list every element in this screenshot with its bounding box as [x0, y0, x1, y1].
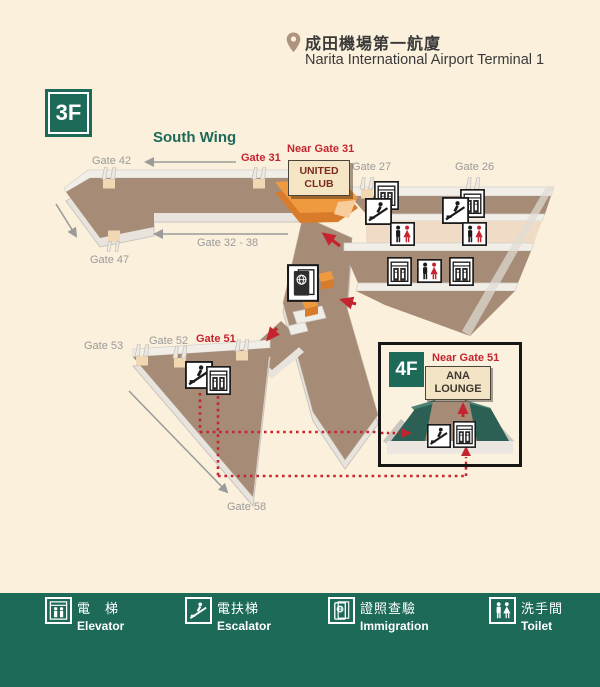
- terminal-map-graphic: [0, 0, 600, 600]
- elevator-icon: [450, 258, 473, 285]
- legend-elevator-zh: 電 梯: [77, 598, 124, 617]
- near-gate-31-label: Near Gate 31: [287, 143, 354, 155]
- south-wing-corridor: [64, 170, 302, 247]
- toilet-icon: [391, 223, 414, 245]
- gate-42-label: Gate 42: [92, 155, 131, 167]
- toilet-icon: [418, 260, 441, 282]
- escalator-icon: [428, 425, 450, 447]
- ana-lounge-label: ANA LOUNGE: [425, 366, 491, 400]
- gate-58-label: Gate 58: [227, 501, 266, 513]
- gates-32-38-label: Gate 32 - 38: [197, 237, 258, 249]
- legend-elevator-en: Elevator: [77, 619, 124, 633]
- gate-47-label: Gate 47: [90, 254, 129, 266]
- elevator-icon: [45, 597, 72, 624]
- gate-51-label: Gate 51: [196, 333, 236, 345]
- elevator-icon: [454, 422, 475, 447]
- toilet-icon: [463, 223, 486, 245]
- legend-escalator-zh: 電扶梯: [217, 598, 271, 617]
- united-club-lounge-label: UNITED CLUB: [288, 160, 350, 196]
- airport-floor-map-page: 成田機場第一航廈 Narita International Airport Te…: [0, 0, 600, 687]
- floor-4f-inset: 4F Near Gate 51 ANA LOUNGE: [378, 342, 522, 467]
- immigration-icon: [328, 597, 355, 624]
- gate-26-label: Gate 26: [455, 161, 494, 173]
- gate-53-label: Gate 53: [84, 340, 123, 352]
- legend-toilet-zh: 洗手間: [521, 598, 563, 617]
- immigration-icon: [288, 265, 318, 301]
- escalator-icon: [366, 199, 391, 224]
- elevator-icon: [388, 258, 411, 285]
- toilet-icon: [489, 597, 516, 624]
- escalator-icon: [443, 198, 468, 223]
- floor-badge-4f: 4F: [389, 352, 424, 387]
- map-legend: 電 梯 Elevator 電扶梯 Escalator: [0, 593, 600, 687]
- south-wing-label: South Wing: [153, 129, 236, 146]
- elevator-icon: [207, 367, 230, 394]
- legend-toilet-en: Toilet: [521, 619, 563, 633]
- gate-52-label: Gate 52: [149, 335, 188, 347]
- legend-escalator-en: Escalator: [217, 619, 271, 633]
- escalator-icon: [185, 597, 212, 624]
- legend-immigration-en: Immigration: [360, 619, 429, 633]
- gate-47-marker: [107, 231, 120, 253]
- legend-immigration-zh: 證照查驗: [360, 598, 429, 617]
- gate-31-label: Gate 31: [241, 152, 281, 164]
- near-gate-51-label: Near Gate 51: [432, 352, 499, 364]
- gate-27-label: Gate 27: [352, 161, 391, 173]
